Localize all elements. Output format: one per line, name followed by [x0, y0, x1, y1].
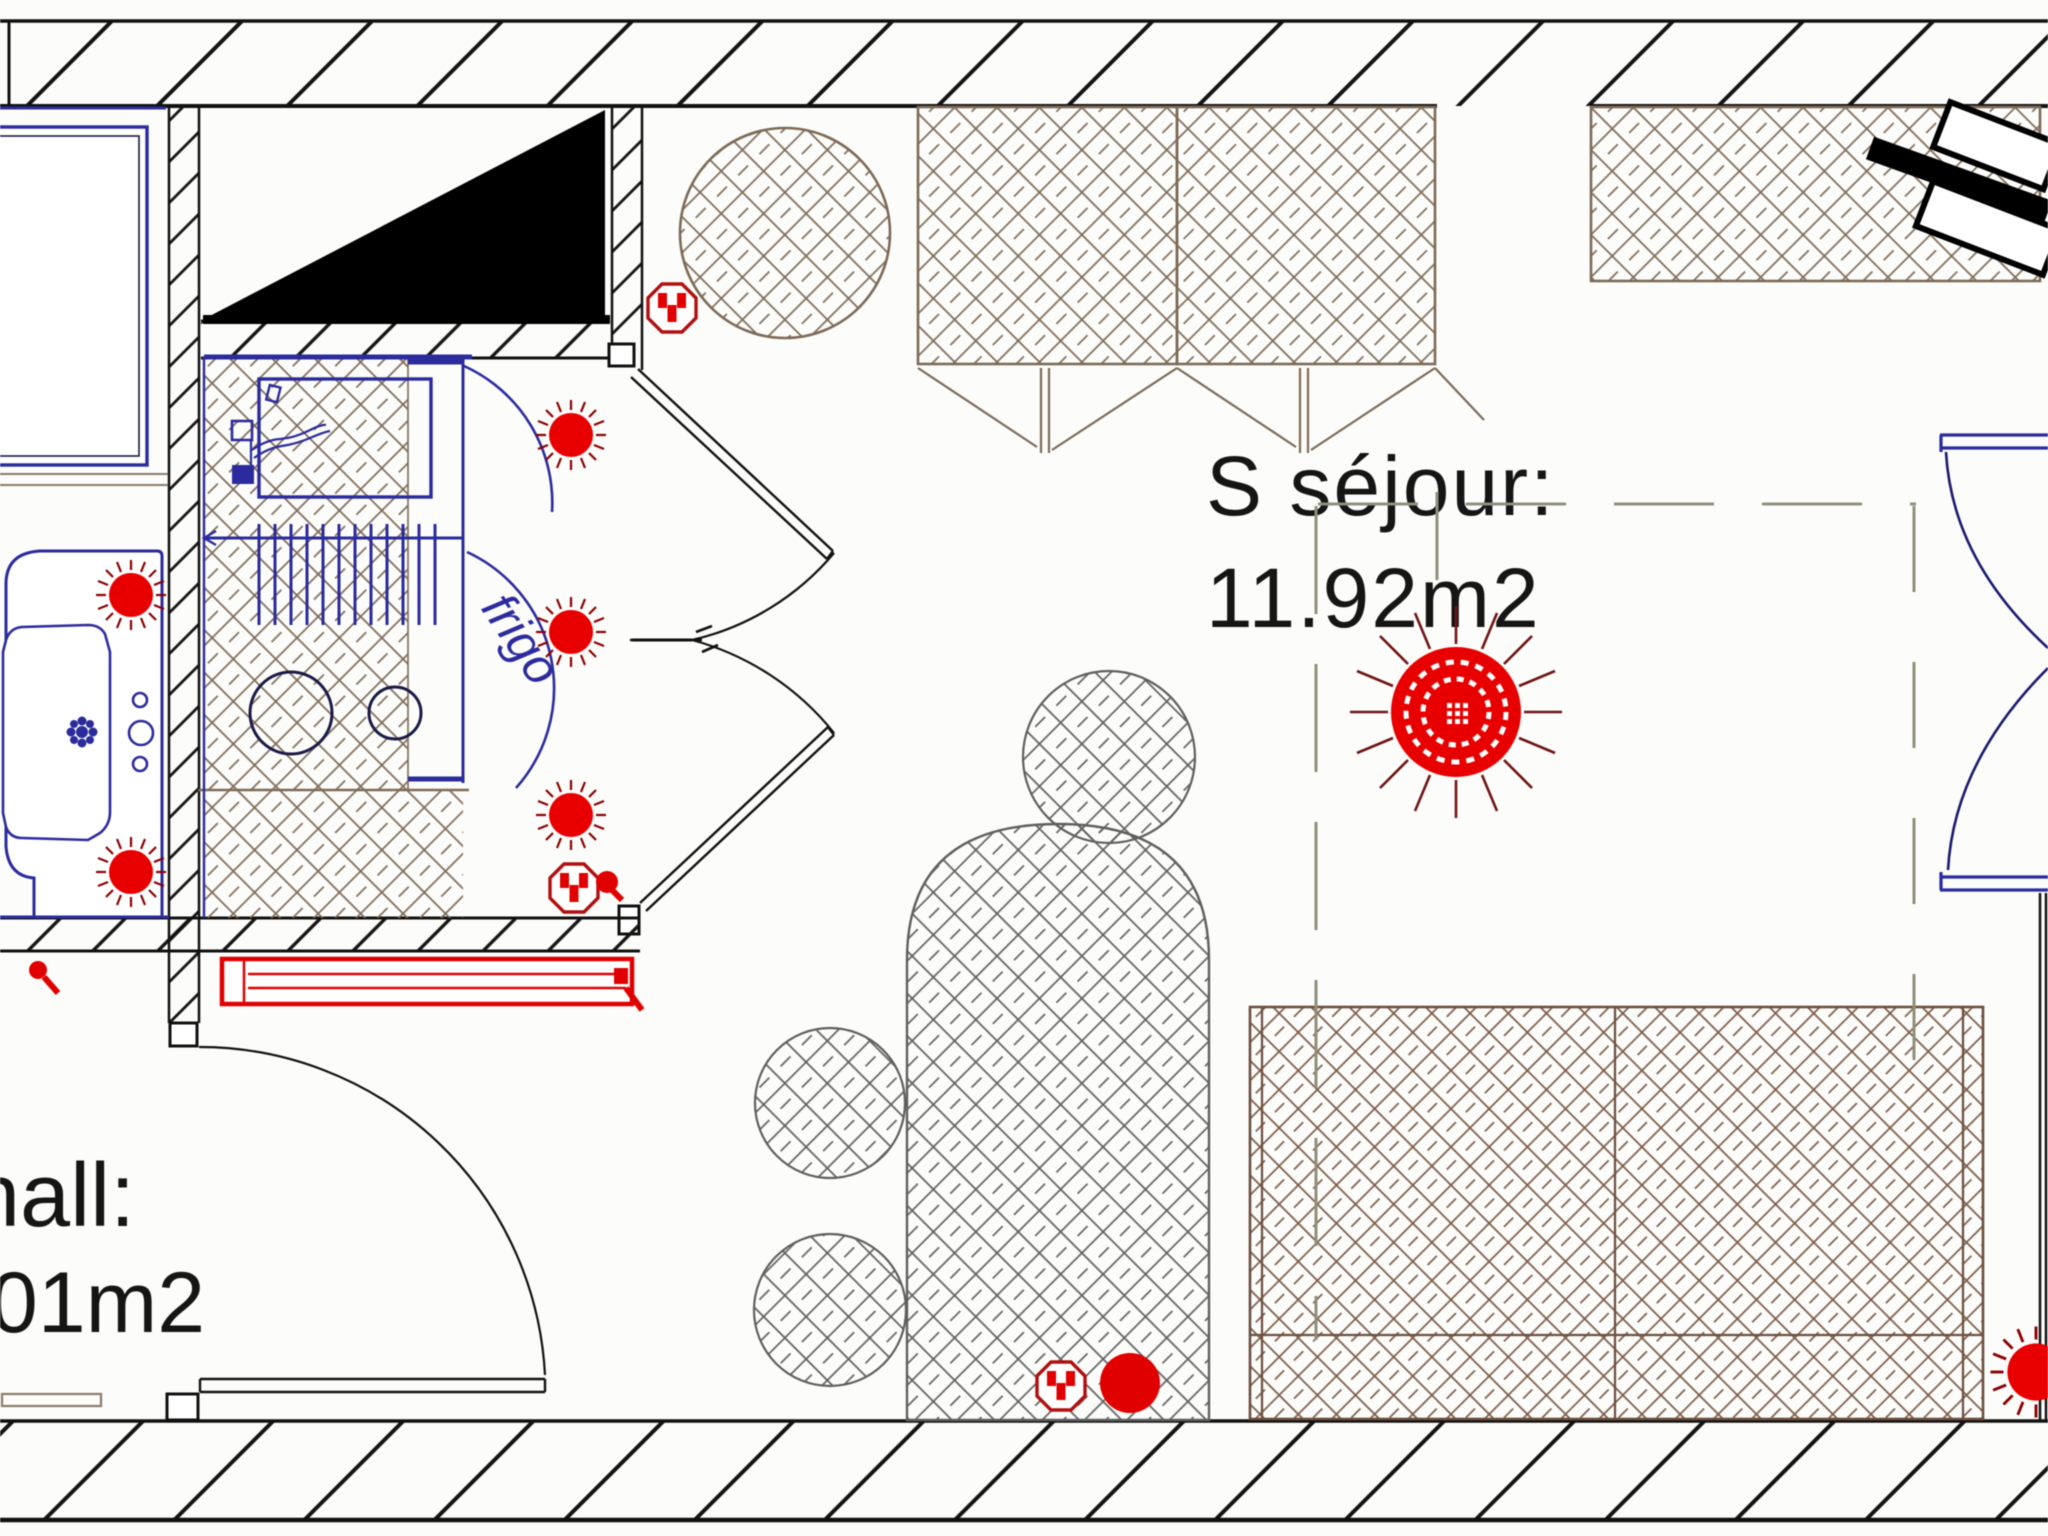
- svg-text:hall:: hall:: [0, 1146, 135, 1246]
- svg-text:01m2: 01m2: [0, 1255, 205, 1351]
- svg-text:S séjour:: S séjour:: [1206, 439, 1556, 533]
